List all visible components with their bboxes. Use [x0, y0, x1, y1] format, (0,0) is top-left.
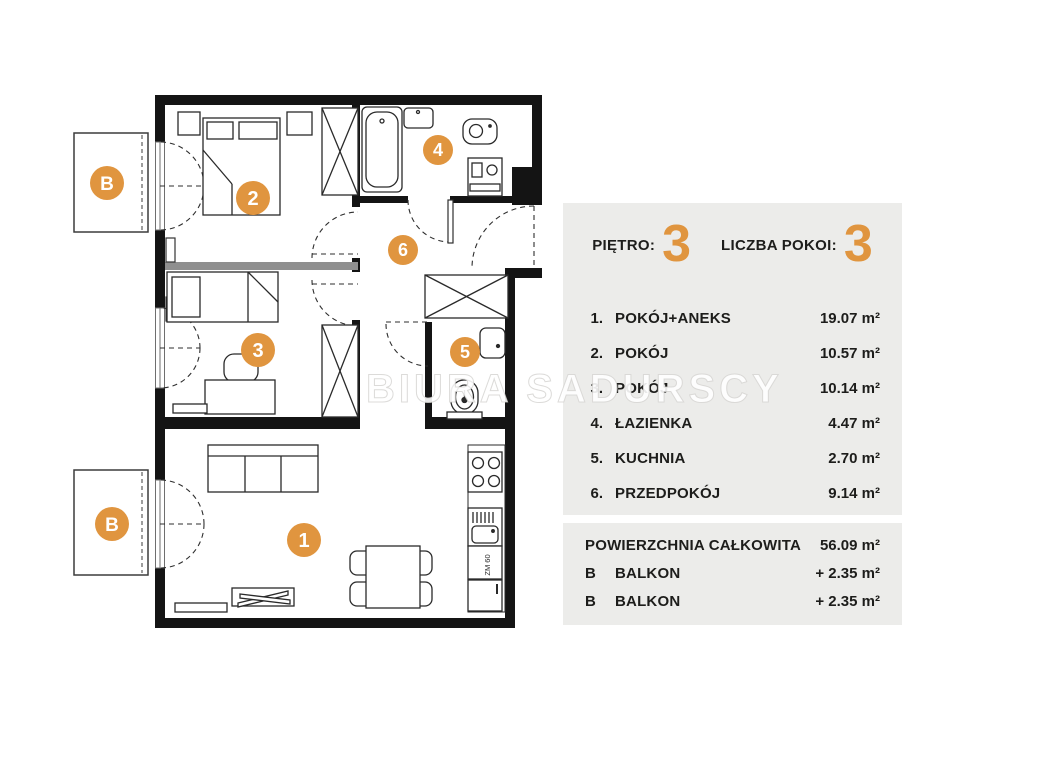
door-swings — [160, 142, 534, 568]
room-number: 5. — [585, 450, 603, 467]
balcony-label: BALKON — [615, 593, 815, 610]
balcony-marker-top: B — [100, 174, 114, 195]
balcony-row: B BALKON + 2.35 m² — [585, 587, 880, 615]
panel-header: PIĘTRO: 3 LICZBA POKOI: 3 — [563, 217, 902, 273]
balcony-letter: B — [585, 593, 603, 610]
room-list: 1. POKÓJ+ANEKS 19.07 m² 2. POKÓJ 10.57 m… — [563, 301, 902, 511]
desk — [173, 354, 275, 414]
room-area: 2.70 m² — [828, 450, 880, 467]
toilet — [463, 119, 497, 144]
dishwasher-label: ZM 60 — [483, 554, 492, 575]
room-row: 6. PRZEDPOKÓJ 9.14 m² — [585, 476, 880, 511]
balcony-area: + 2.35 m² — [815, 593, 880, 610]
kitchen-sink — [480, 328, 505, 358]
room-number: 4. — [585, 415, 603, 432]
dining-set — [350, 546, 432, 608]
room-1-marker: 1 — [298, 530, 309, 552]
room-row: 2. POKÓJ 10.57 m² — [585, 336, 880, 371]
bathroom-sink — [404, 108, 433, 128]
total-area-label: POWIERZCHNIA CAŁKOWITA — [585, 537, 820, 554]
water-heater — [447, 380, 482, 419]
bathtub — [362, 107, 402, 192]
room-number: 2. — [585, 345, 603, 362]
balcony-label: BALKON — [615, 565, 815, 582]
totals-list: POWIERZCHNIA CAŁKOWITA 56.09 m² B BALKON… — [563, 523, 902, 615]
floor-value: 3 — [662, 224, 691, 266]
room-6-marker: 6 — [398, 240, 408, 260]
double-bed — [178, 112, 312, 215]
single-bed — [167, 272, 278, 322]
room-2-marker: 2 — [247, 188, 258, 210]
room-markers: B B 2 3 1 4 6 5 — [90, 135, 480, 557]
balcony-marker-bottom: B — [105, 515, 119, 536]
room-number: 1. — [585, 310, 603, 327]
room-number: 6. — [585, 485, 603, 502]
room-area: 9.14 m² — [828, 485, 880, 502]
washing-machine — [468, 158, 502, 196]
room-area: 10.14 m² — [820, 380, 880, 397]
tv-stand — [175, 588, 294, 612]
door-leaves — [448, 200, 453, 243]
shaft — [425, 275, 508, 318]
room-count-label: LICZBA POKOI: — [721, 237, 837, 254]
total-area-value: 56.09 m² — [820, 537, 880, 554]
radiator — [166, 238, 175, 321]
room-name: ŁAZIENKA — [615, 415, 828, 432]
room-name: POKÓJ — [615, 380, 820, 397]
room-row: 3. POKÓJ 10.14 m² — [585, 371, 880, 406]
room-5-marker: 5 — [460, 342, 470, 362]
balcony-row: B BALKON + 2.35 m² — [585, 559, 880, 587]
totals-panel: POWIERZCHNIA CAŁKOWITA 56.09 m² B BALKON… — [563, 523, 902, 625]
room-name: PRZEDPOKÓJ — [615, 485, 828, 502]
balcony-bottom — [74, 470, 148, 575]
room-area: 4.47 m² — [828, 415, 880, 432]
room-area: 19.07 m² — [820, 310, 880, 327]
room-row: 4. ŁAZIENKA 4.47 m² — [585, 406, 880, 441]
room-row: 5. KUCHNIA 2.70 m² — [585, 441, 880, 476]
room-count-value: 3 — [844, 224, 873, 266]
wardrobe — [322, 108, 358, 195]
total-area-row: POWIERZCHNIA CAŁKOWITA 56.09 m² — [585, 531, 880, 559]
sofa — [208, 445, 318, 492]
wardrobe — [322, 325, 358, 417]
room-4-marker: 4 — [433, 140, 443, 160]
kitchen-annex — [468, 445, 505, 612]
room-row: 1. POKÓJ+ANEKS 19.07 m² — [585, 301, 880, 336]
room-3-marker: 3 — [252, 340, 263, 362]
balcony-letter: B — [585, 565, 603, 582]
room-name: KUCHNIA — [615, 450, 828, 467]
apartment-info-panel: PIĘTRO: 3 LICZBA POKOI: 3 1. POKÓJ+ANEKS… — [563, 203, 902, 515]
room-name: POKÓJ — [615, 345, 820, 362]
floor-label: PIĘTRO: — [592, 237, 655, 254]
room-name: POKÓJ+ANEKS — [615, 310, 820, 327]
walls — [155, 95, 542, 628]
balcony-top — [74, 133, 148, 232]
windows — [156, 142, 165, 568]
balcony-area: + 2.35 m² — [815, 565, 880, 582]
room-area: 10.57 m² — [820, 345, 880, 362]
room-number: 3. — [585, 380, 603, 397]
